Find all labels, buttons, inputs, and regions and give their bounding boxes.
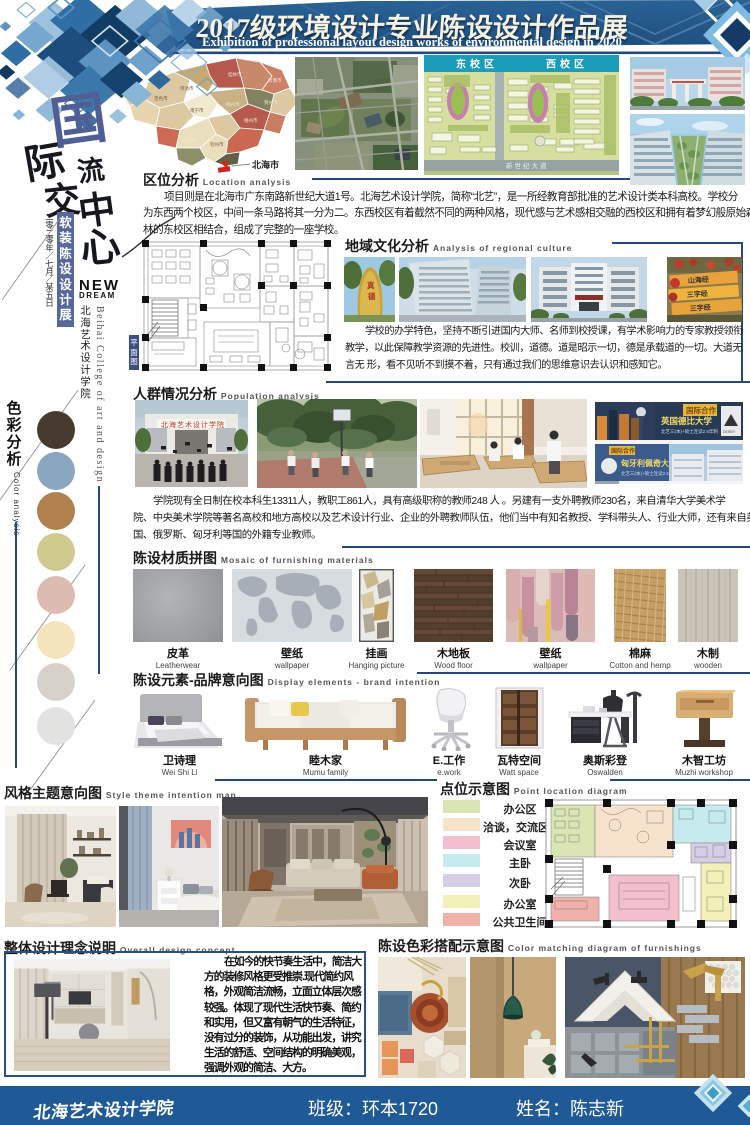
svg-text:真: 真 (367, 280, 375, 290)
svg-text:北海艺术设计学院: 北海艺术设计学院 (161, 420, 225, 429)
svg-text:德: 德 (368, 291, 376, 301)
svg-text:匈牙利佩奇大学: 匈牙利佩奇大学 (620, 458, 677, 468)
svg-text:DERBY: DERBY (723, 430, 736, 434)
svg-text:国际合作: 国际合作 (611, 447, 635, 455)
svg-text:英国德比大学: 英国德比大学 (660, 416, 713, 426)
svg-text:国际合作: 国际合作 (686, 405, 716, 415)
svg-text:新世纪大道: 新世纪大道 (506, 161, 549, 170)
svg-text:北艺三(本)+硕士连读2.5年制: 北艺三(本)+硕士连读2.5年制 (661, 428, 718, 435)
svg-text:西校区: 西校区 (546, 58, 588, 71)
